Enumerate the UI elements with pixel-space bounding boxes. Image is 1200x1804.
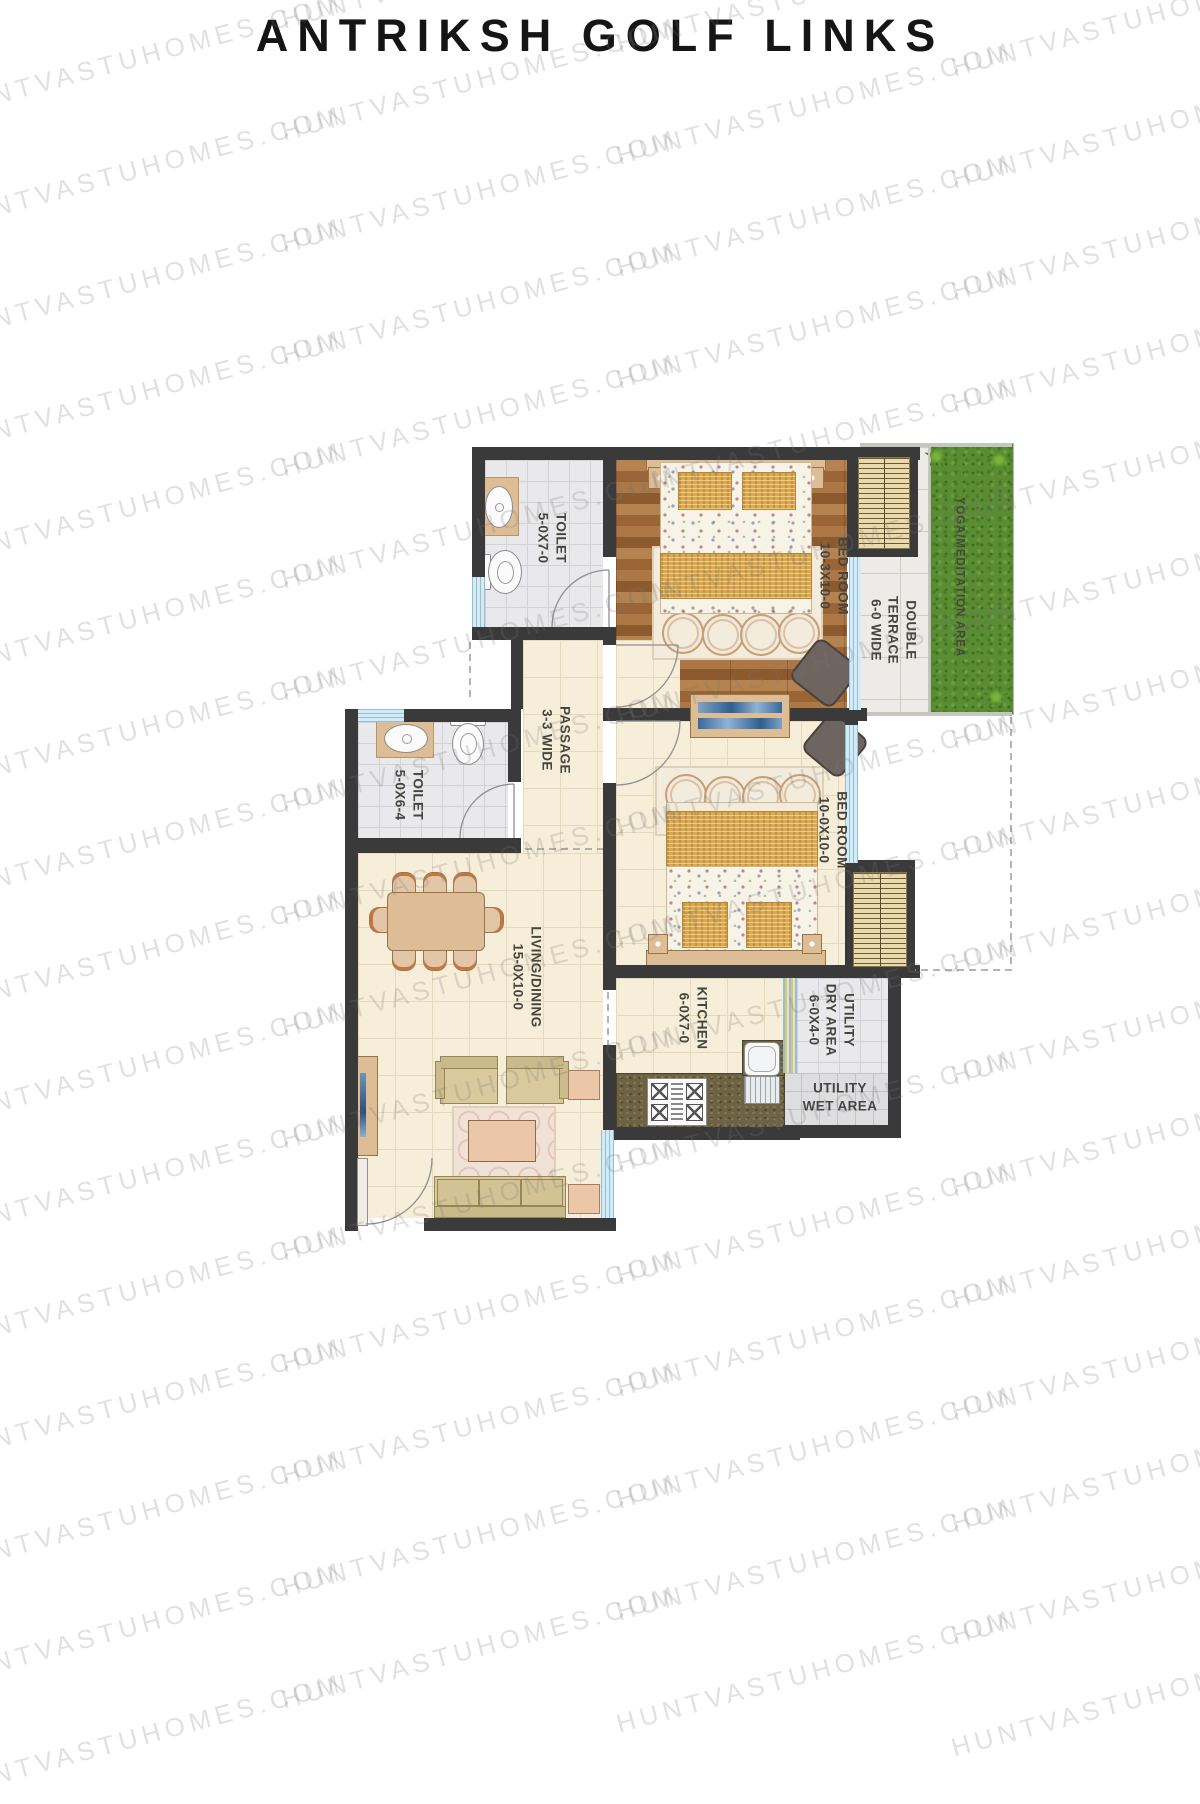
room-name: KITCHEN [693, 987, 711, 1050]
room-dims: 3-3 WIDE [538, 709, 556, 771]
room-dims: 6-0X4-0 [805, 995, 823, 1046]
room-name: UTILITY [840, 993, 858, 1047]
room-name: YOGA/MEDITATION AREA [952, 497, 967, 657]
room-dims: 6-0X7-0 [675, 993, 693, 1044]
room-name: TOILET [409, 770, 427, 820]
room-dims: 15-0X10-0 [509, 944, 527, 1011]
room-dims: 6-0 WIDE [867, 599, 885, 661]
floor-plan: TOILET5-0X7-0 BED ROOM10-3X10-0 DOUBLETE… [0, 0, 1200, 1697]
room-name: TERRACE [884, 596, 902, 664]
room-name: LIVING/DINING [527, 926, 545, 1027]
room-dims: 5-0X6-4 [391, 770, 409, 821]
room-name: DOUBLE [902, 600, 920, 659]
door-swings-and-dashed-lines [0, 0, 1200, 1697]
room-name: TOILET [552, 513, 570, 563]
room-name: UTILITY [813, 1079, 867, 1097]
room-name: PASSAGE [556, 706, 574, 774]
room-name: BED ROOM [833, 791, 851, 868]
room-name: BED ROOM [834, 537, 852, 614]
room-dims: 5-0X7-0 [534, 513, 552, 564]
room-name: DRY AREA [822, 984, 840, 1056]
room-dims: 10-3X10-0 [816, 543, 834, 610]
room-name: WET AREA [803, 1097, 878, 1115]
room-dims: 10-0X10-0 [815, 797, 833, 864]
